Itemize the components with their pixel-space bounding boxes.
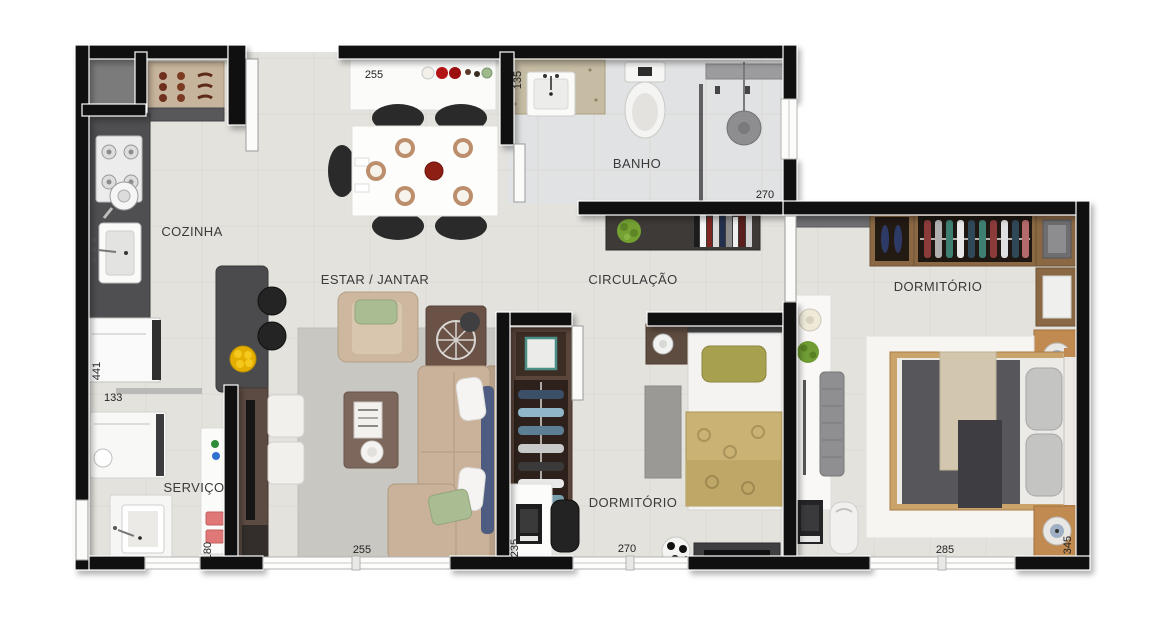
service-door-leaf: [76, 500, 88, 560]
room-label-dormitorio-1: DORMITÓRIO: [589, 495, 678, 510]
wall: [1015, 556, 1090, 570]
bench: [820, 372, 844, 476]
pantry-shelf: [148, 62, 224, 121]
coat-shelf: [795, 214, 871, 227]
floor-plan: COZINHA ESTAR / JANTAR BANHO CIRCULAÇÃO …: [0, 0, 1170, 633]
room-label-estar-jantar: ESTAR / JANTAR: [321, 272, 429, 287]
entry-door-leaf: [246, 59, 258, 151]
wall: [783, 201, 1090, 215]
dim-estar-width: 255: [353, 544, 371, 556]
pillow: [455, 376, 487, 421]
wall: [500, 52, 514, 145]
shoes: [881, 225, 889, 253]
wall: [224, 385, 238, 556]
bedroom2-door-leaf: [785, 216, 796, 302]
pouf: [268, 395, 304, 437]
double-bed: [890, 348, 1082, 514]
tv: [246, 400, 255, 520]
wall: [578, 201, 783, 215]
shoes: [894, 225, 902, 253]
coffee-table: [344, 392, 398, 468]
dim-dorm2-depth: 345: [1062, 536, 1074, 554]
toilet: [625, 62, 665, 138]
dining-table: [352, 126, 498, 216]
dim-cozinha-height: 441: [91, 362, 103, 380]
centerpiece: [425, 162, 443, 180]
room-label-banho: BANHO: [613, 156, 661, 171]
dining-area: [328, 60, 498, 240]
window: [870, 556, 1015, 570]
blanket: [686, 412, 782, 506]
single-bed: [686, 326, 782, 510]
tv-console: [238, 388, 268, 566]
pillow: [1026, 368, 1062, 430]
shaft: [87, 56, 135, 106]
wall: [228, 45, 246, 125]
washer: [90, 412, 166, 478]
wall: [688, 556, 870, 570]
plant: [797, 341, 819, 363]
rug: [645, 386, 681, 478]
window: [781, 99, 797, 159]
wall: [75, 45, 228, 59]
room-label-servico: SERVIÇO: [163, 480, 224, 495]
dim-dorm2-width: 285: [936, 544, 954, 556]
nightstand: [646, 324, 688, 364]
wall: [647, 312, 783, 326]
hallway: [606, 212, 760, 250]
wall: [75, 45, 89, 570]
dim-jantar-width: 255: [365, 69, 383, 81]
window: [145, 557, 200, 569]
window: [263, 556, 450, 570]
sideboard: [350, 60, 496, 110]
wall: [1076, 201, 1090, 570]
bedroom1-door-leaf: [572, 326, 583, 400]
books: [694, 215, 752, 247]
wall: [496, 312, 510, 556]
wall: [338, 45, 797, 59]
wall: [82, 104, 146, 116]
floor-plan-canvas: COZINHA ESTAR / JANTAR BANHO CIRCULAÇÃO …: [0, 0, 1170, 633]
pillow: [1026, 434, 1062, 496]
dim-servico-width: 180: [202, 542, 214, 560]
dim-banho-depth: 135: [512, 71, 524, 89]
room-label-dormitorio-2: DORMITÓRIO: [894, 279, 983, 294]
shower-glass: [699, 84, 703, 202]
laundry-sink: [110, 495, 172, 563]
pouf: [268, 442, 304, 484]
pillow: [702, 346, 766, 382]
armchair: [338, 292, 418, 362]
bar-stool: [258, 287, 286, 315]
towels: [526, 338, 556, 369]
window: [573, 556, 688, 570]
wall: [783, 302, 797, 556]
wall: [135, 52, 147, 112]
dim-cozinha-width: 133: [104, 392, 122, 404]
dim-dorm1-width: 270: [618, 543, 636, 555]
side-table: [426, 306, 486, 368]
room-label-circulacao: CIRCULAÇÃO: [588, 272, 677, 287]
kitchen-sink: [92, 223, 141, 283]
fruit-bowl: [230, 346, 256, 372]
desk-chair: [551, 500, 579, 552]
dim-banho-width: 270: [756, 189, 774, 201]
hall-console: [606, 212, 760, 250]
bathroom-door-leaf: [514, 144, 525, 202]
dim-dorm1-depth: 235: [509, 539, 521, 557]
wall: [783, 45, 797, 100]
magazine: [354, 402, 382, 438]
bar-stool: [258, 322, 286, 350]
room-label-cozinha: COZINHA: [161, 224, 222, 239]
